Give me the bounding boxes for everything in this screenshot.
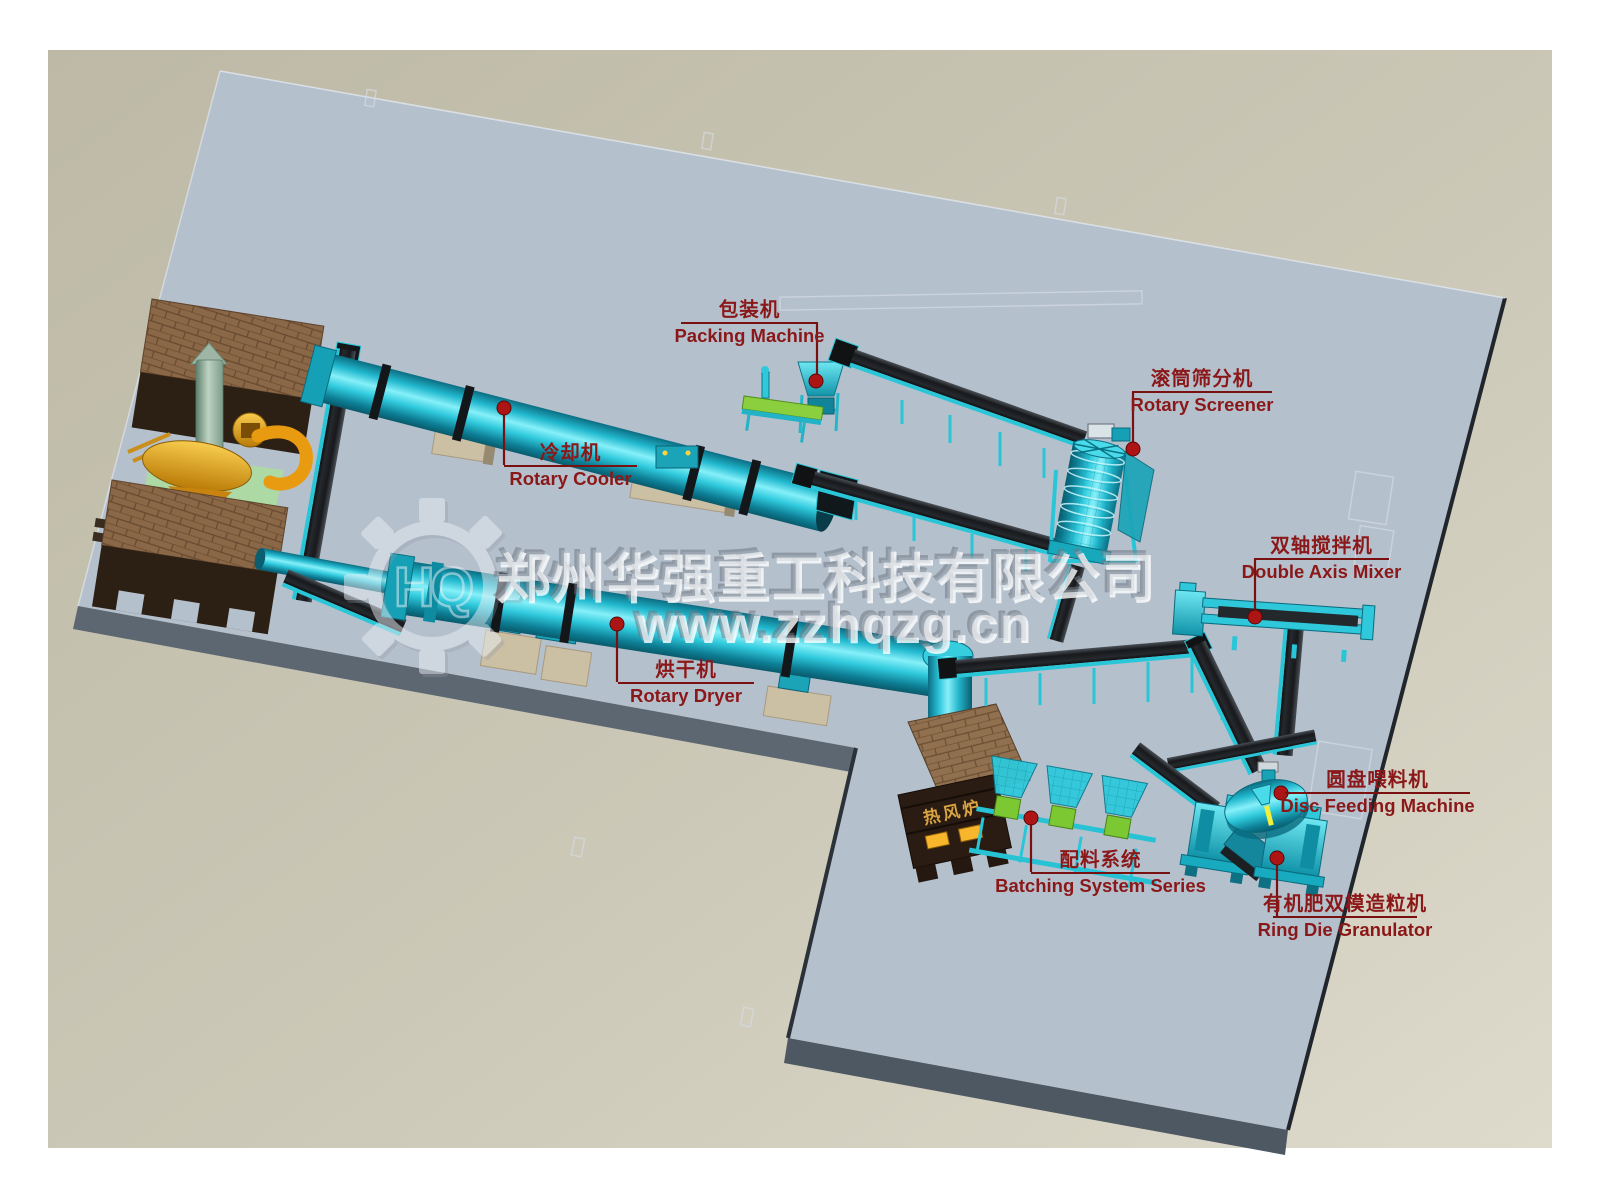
label-rotary-cooler: 冷却机 Rotary Cooler <box>504 441 637 489</box>
plant-layout-screenshot: 热风炉 <box>0 0 1600 1200</box>
label-underline <box>1273 916 1417 918</box>
svg-text:www.zzhqzg.cn: www.zzhqzg.cn <box>634 595 1030 653</box>
label-disc-feeding-machine: 圆盘喂料机 Disc Feeding Machine <box>1285 768 1470 816</box>
label-rotary-cooler-zh: 冷却机 <box>540 441 602 465</box>
label-ring-die-granulator: 有机肥双模造粒机 Ring Die Granulator <box>1273 892 1417 940</box>
label-double-axis-mixer: 双轴搅拌机 Double Axis Mixer <box>1254 534 1389 582</box>
label-rotary-screener-zh: 滚筒筛分机 <box>1151 367 1254 391</box>
label-disc-feeding-machine-zh: 圆盘喂料机 <box>1326 768 1429 792</box>
label-double-axis-mixer-en: Double Axis Mixer <box>1242 561 1402 582</box>
label-rotary-dryer: 烘干机 Rotary Dryer <box>618 658 754 706</box>
label-underline <box>1285 792 1470 794</box>
label-packing-machine-zh: 包装机 <box>719 298 781 322</box>
label-rotary-dryer-en: Rotary Dryer <box>630 685 742 706</box>
label-underline <box>618 682 754 684</box>
label-batching-system-zh: 配料系统 <box>1059 848 1141 872</box>
label-ring-die-granulator-zh: 有机肥双模造粒机 <box>1263 892 1427 916</box>
label-disc-feeding-machine-en: Disc Feeding Machine <box>1280 795 1474 816</box>
label-packing-machine-en: Packing Machine <box>674 325 824 346</box>
watermark-logo-text: HQ <box>394 555 472 618</box>
label-ring-die-granulator-en: Ring Die Granulator <box>1258 919 1433 940</box>
label-underline <box>1031 872 1170 874</box>
label-underline <box>1132 391 1272 393</box>
label-underline <box>504 465 637 467</box>
watermark-website: www.zzhqzg.cn www.zzhqzg.cn www.zzhqzg.c… <box>631 592 1032 655</box>
label-packing-machine: 包装机 Packing Machine <box>681 298 818 346</box>
label-batching-system: 配料系统 Batching System Series <box>1031 848 1170 896</box>
label-rotary-dryer-zh: 烘干机 <box>655 658 717 682</box>
label-rotary-screener-en: Rotary Screener <box>1131 394 1274 415</box>
label-double-axis-mixer-zh: 双轴搅拌机 <box>1270 534 1373 558</box>
factory-3d-scene: 热风炉 <box>0 0 1600 1200</box>
label-batching-system-en: Batching System Series <box>995 875 1206 896</box>
label-underline <box>1254 558 1389 560</box>
label-underline <box>681 322 818 324</box>
label-rotary-cooler-en: Rotary Cooler <box>509 468 631 489</box>
label-rotary-screener: 滚筒筛分机 Rotary Screener <box>1132 367 1272 415</box>
